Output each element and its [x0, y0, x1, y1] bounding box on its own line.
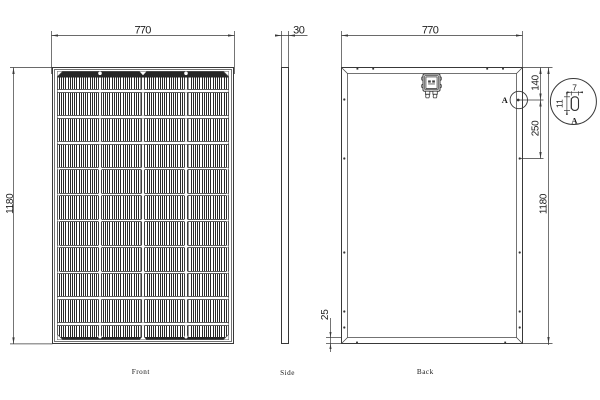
svg-text:1180: 1180: [538, 193, 549, 214]
svg-text:250: 250: [530, 120, 541, 136]
svg-text:11: 11: [555, 99, 565, 108]
svg-text:770: 770: [134, 25, 151, 37]
svg-text:25: 25: [320, 309, 331, 320]
svg-text:770: 770: [422, 25, 439, 37]
svg-text:Back: Back: [417, 368, 434, 376]
svg-text:30: 30: [293, 25, 305, 37]
svg-text:A: A: [502, 96, 508, 105]
svg-text:1180: 1180: [5, 193, 16, 214]
svg-text:140: 140: [530, 74, 541, 90]
svg-text:Side: Side: [280, 369, 295, 377]
svg-text:A: A: [571, 116, 577, 125]
svg-text:7: 7: [572, 82, 577, 92]
svg-text:Front: Front: [132, 368, 150, 376]
